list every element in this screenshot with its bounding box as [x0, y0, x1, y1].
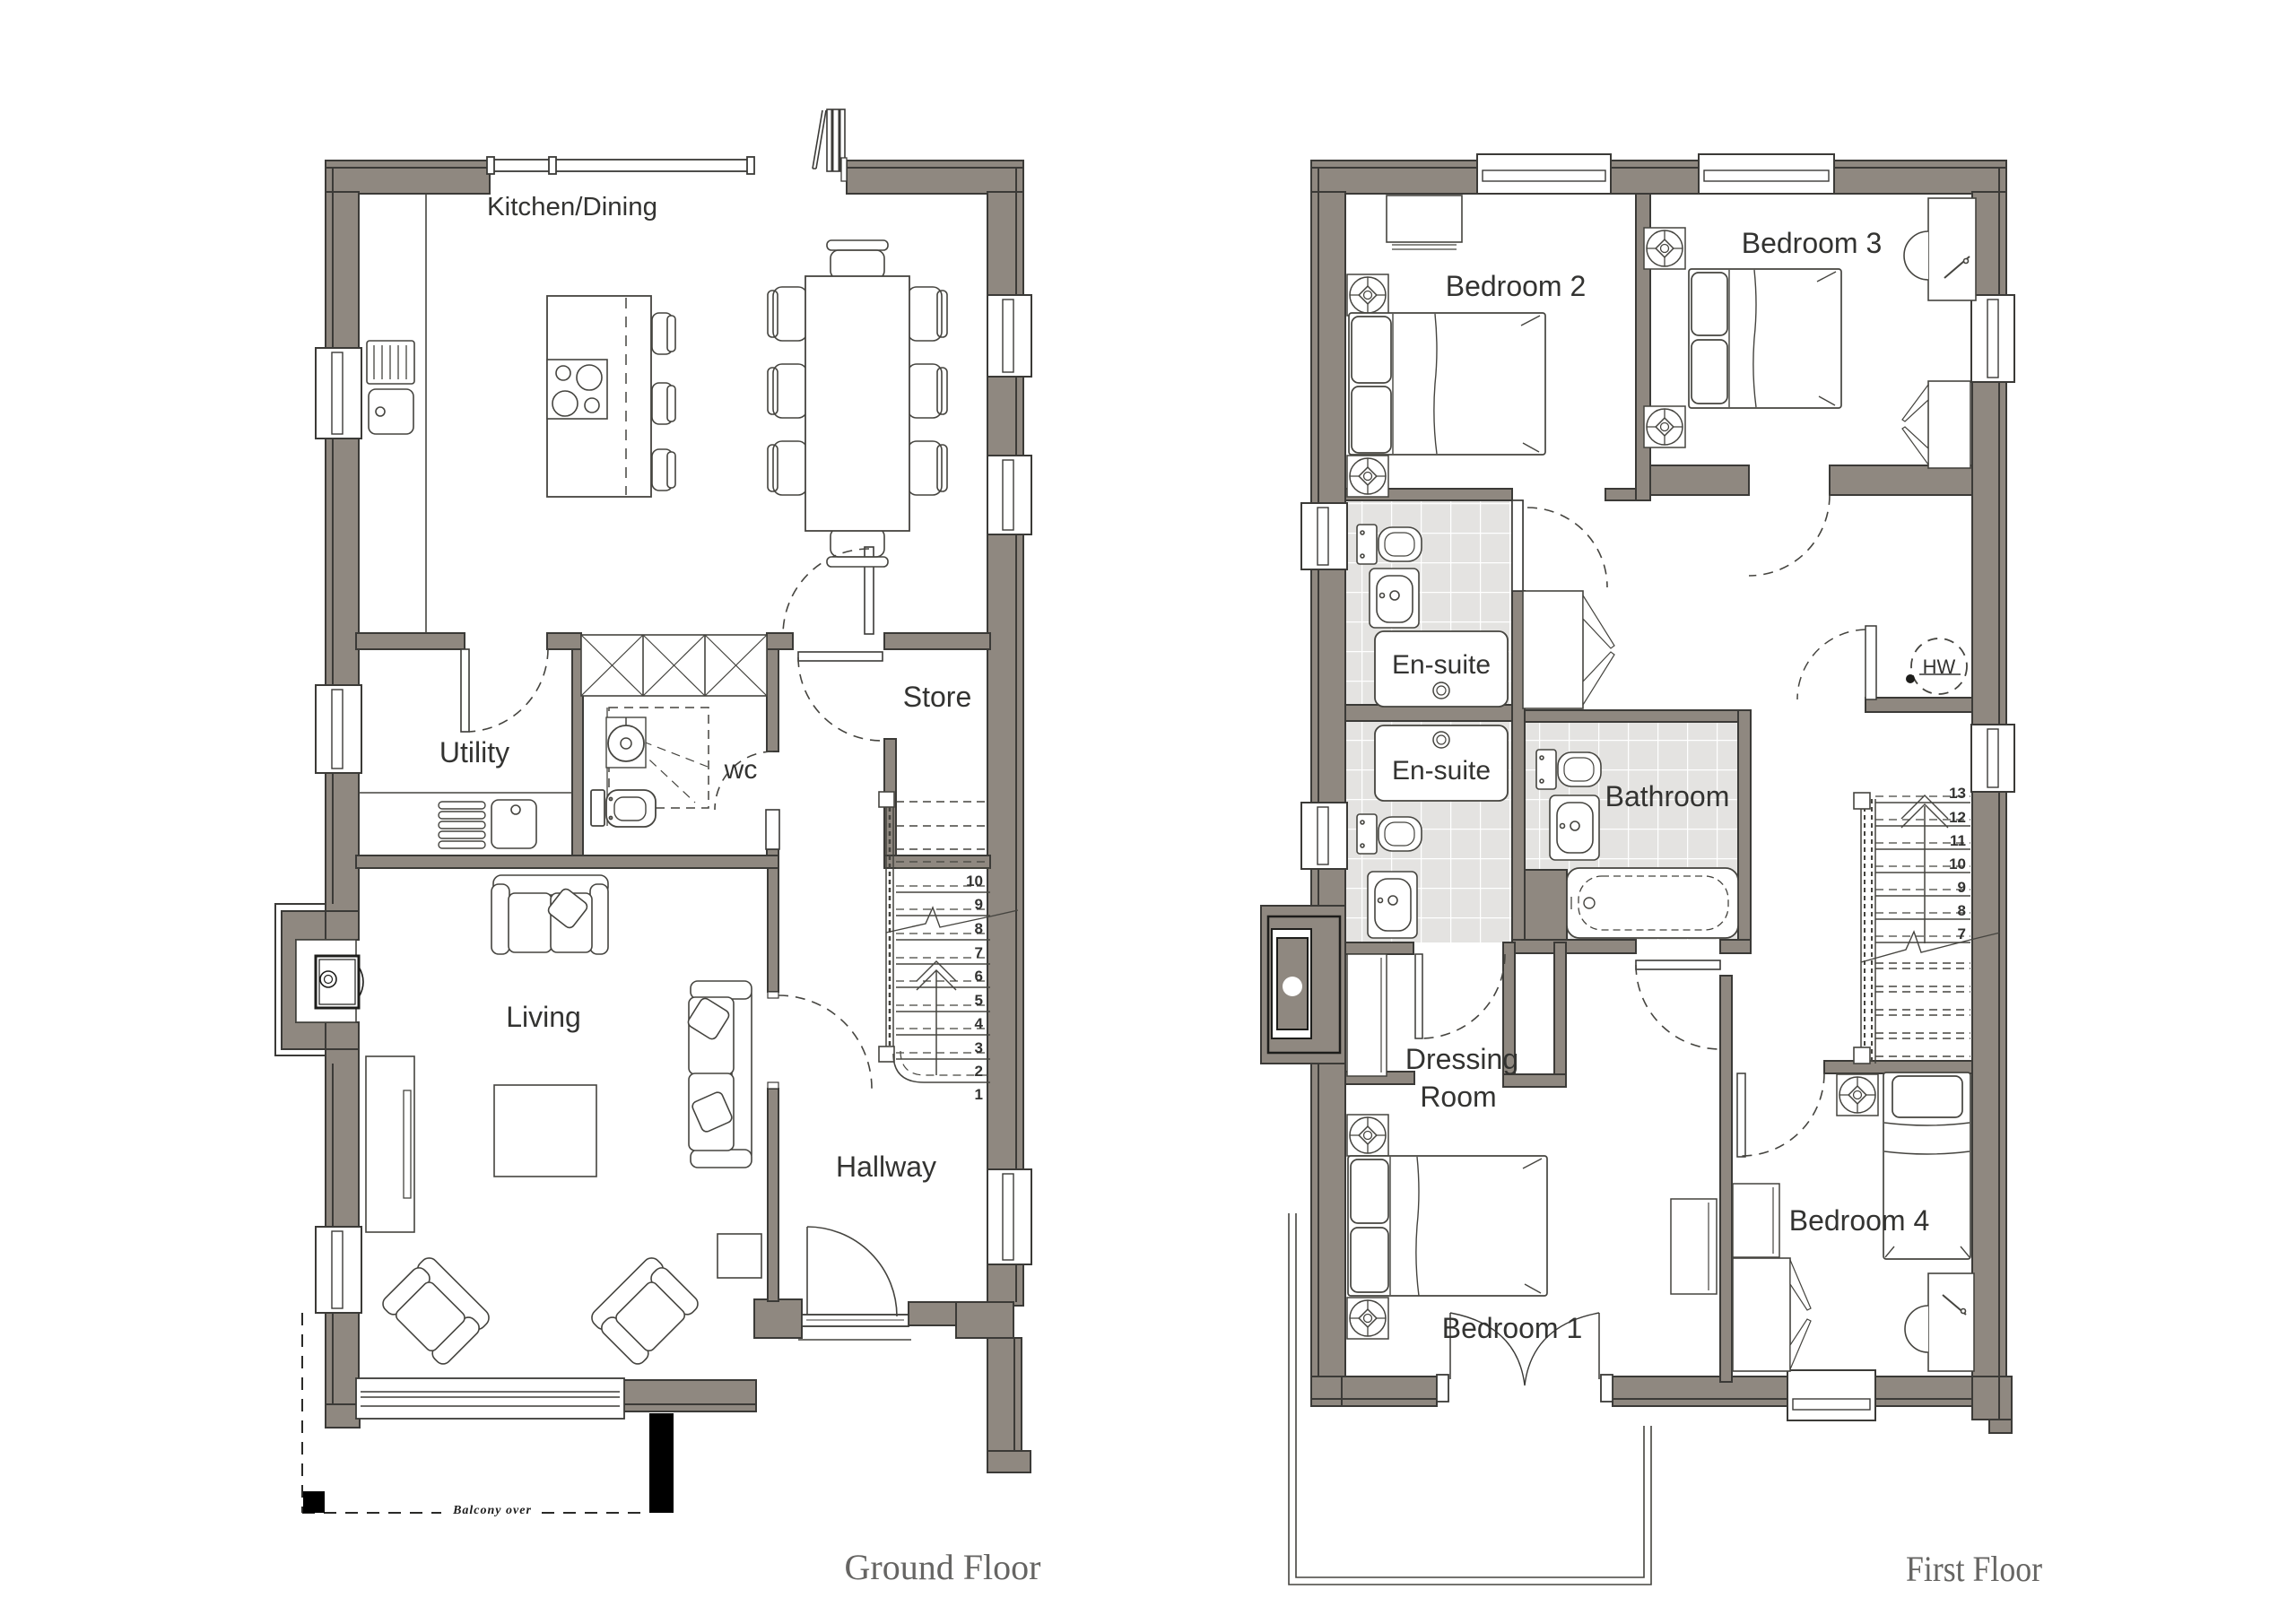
svg-text:1: 1 [975, 1086, 983, 1103]
svg-text:12: 12 [1949, 809, 1966, 826]
svg-text:Utility: Utility [439, 736, 509, 769]
svg-text:7: 7 [975, 944, 983, 961]
svg-text:Store: Store [903, 681, 971, 713]
svg-text:8: 8 [1958, 902, 1966, 919]
svg-text:13: 13 [1949, 785, 1966, 802]
svg-text:7: 7 [1958, 925, 1966, 942]
svg-text:9: 9 [975, 896, 983, 913]
svg-text:wc: wc [724, 755, 758, 785]
svg-text:Bedroom 2: Bedroom 2 [1446, 270, 1587, 302]
svg-text:Dressing: Dressing [1405, 1043, 1518, 1075]
svg-text:11: 11 [1950, 832, 1966, 849]
svg-text:First Floor: First Floor [1906, 1549, 2042, 1589]
svg-text:9: 9 [1958, 879, 1966, 896]
svg-text:Bathroom: Bathroom [1605, 780, 1730, 812]
svg-text:6: 6 [975, 968, 983, 985]
svg-text:Bedroom 4: Bedroom 4 [1789, 1204, 1930, 1237]
svg-text:10: 10 [966, 873, 983, 890]
svg-text:Bedroom 3: Bedroom 3 [1742, 227, 1883, 259]
svg-text:Living: Living [506, 1001, 581, 1033]
svg-text:2: 2 [975, 1063, 983, 1080]
svg-text:Bedroom 1: Bedroom 1 [1442, 1312, 1583, 1344]
svg-text:Room: Room [1420, 1081, 1496, 1113]
svg-text:8: 8 [975, 920, 983, 937]
svg-text:Ground Floor: Ground Floor [845, 1547, 1041, 1587]
svg-text:4: 4 [975, 1015, 984, 1032]
svg-text:En-suite: En-suite [1392, 756, 1491, 786]
svg-text:10: 10 [1949, 855, 1966, 873]
svg-text:5: 5 [975, 992, 983, 1009]
svg-text:Kitchen/Dining: Kitchen/Dining [487, 193, 657, 221]
svg-text:Balcony over: Balcony over [452, 1504, 532, 1517]
svg-text:Hallway: Hallway [836, 1151, 936, 1183]
svg-text:En-suite: En-suite [1392, 650, 1491, 680]
svg-text:3: 3 [975, 1039, 983, 1056]
